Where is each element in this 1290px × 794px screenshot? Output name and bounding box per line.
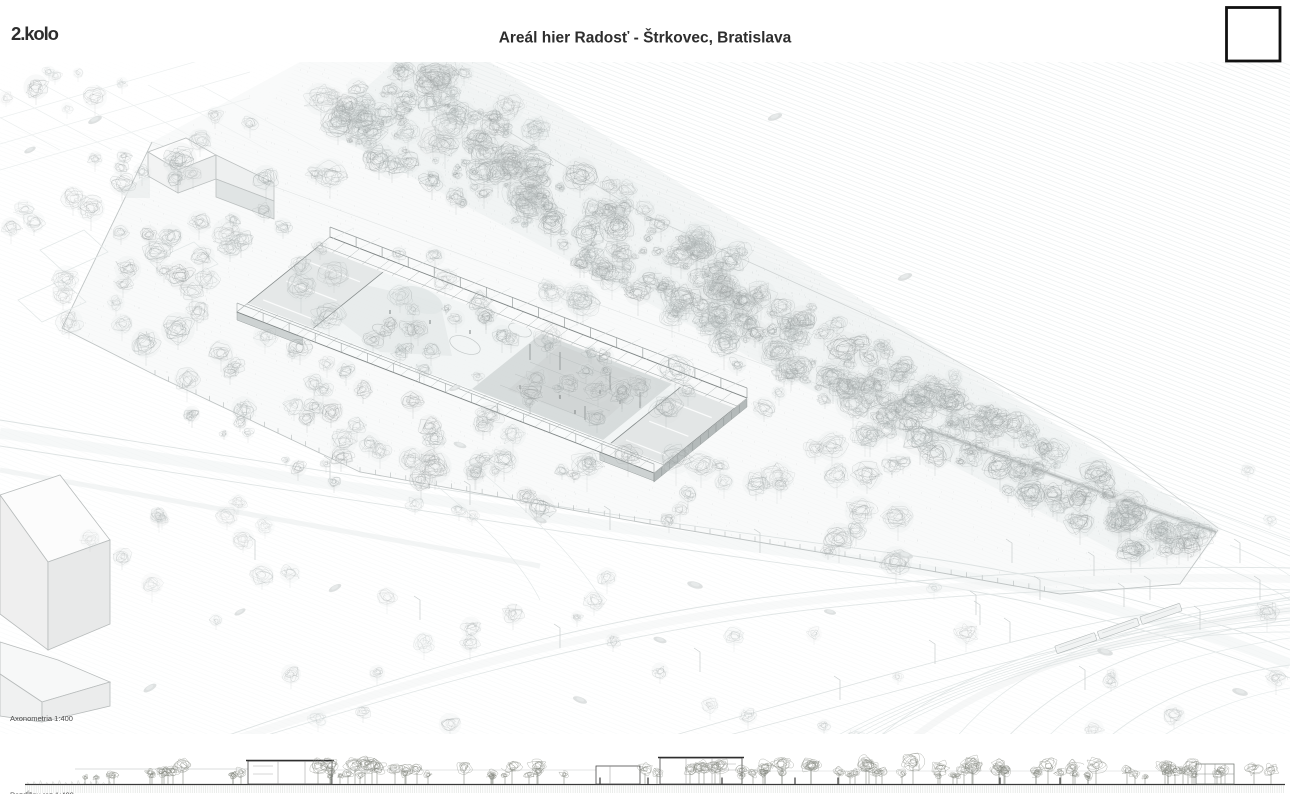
svg-text:Pozdĺžny rez 1:400: Pozdĺžny rez 1:400 [10,791,74,794]
svg-text:2.kolo: 2.kolo [11,23,59,44]
svg-text:Areál hier Radosť - Štrkovec,: Areál hier Radosť - Štrkovec, Bratislava [499,29,792,47]
svg-text:Axonometria 1:400: Axonometria 1:400 [10,714,73,723]
